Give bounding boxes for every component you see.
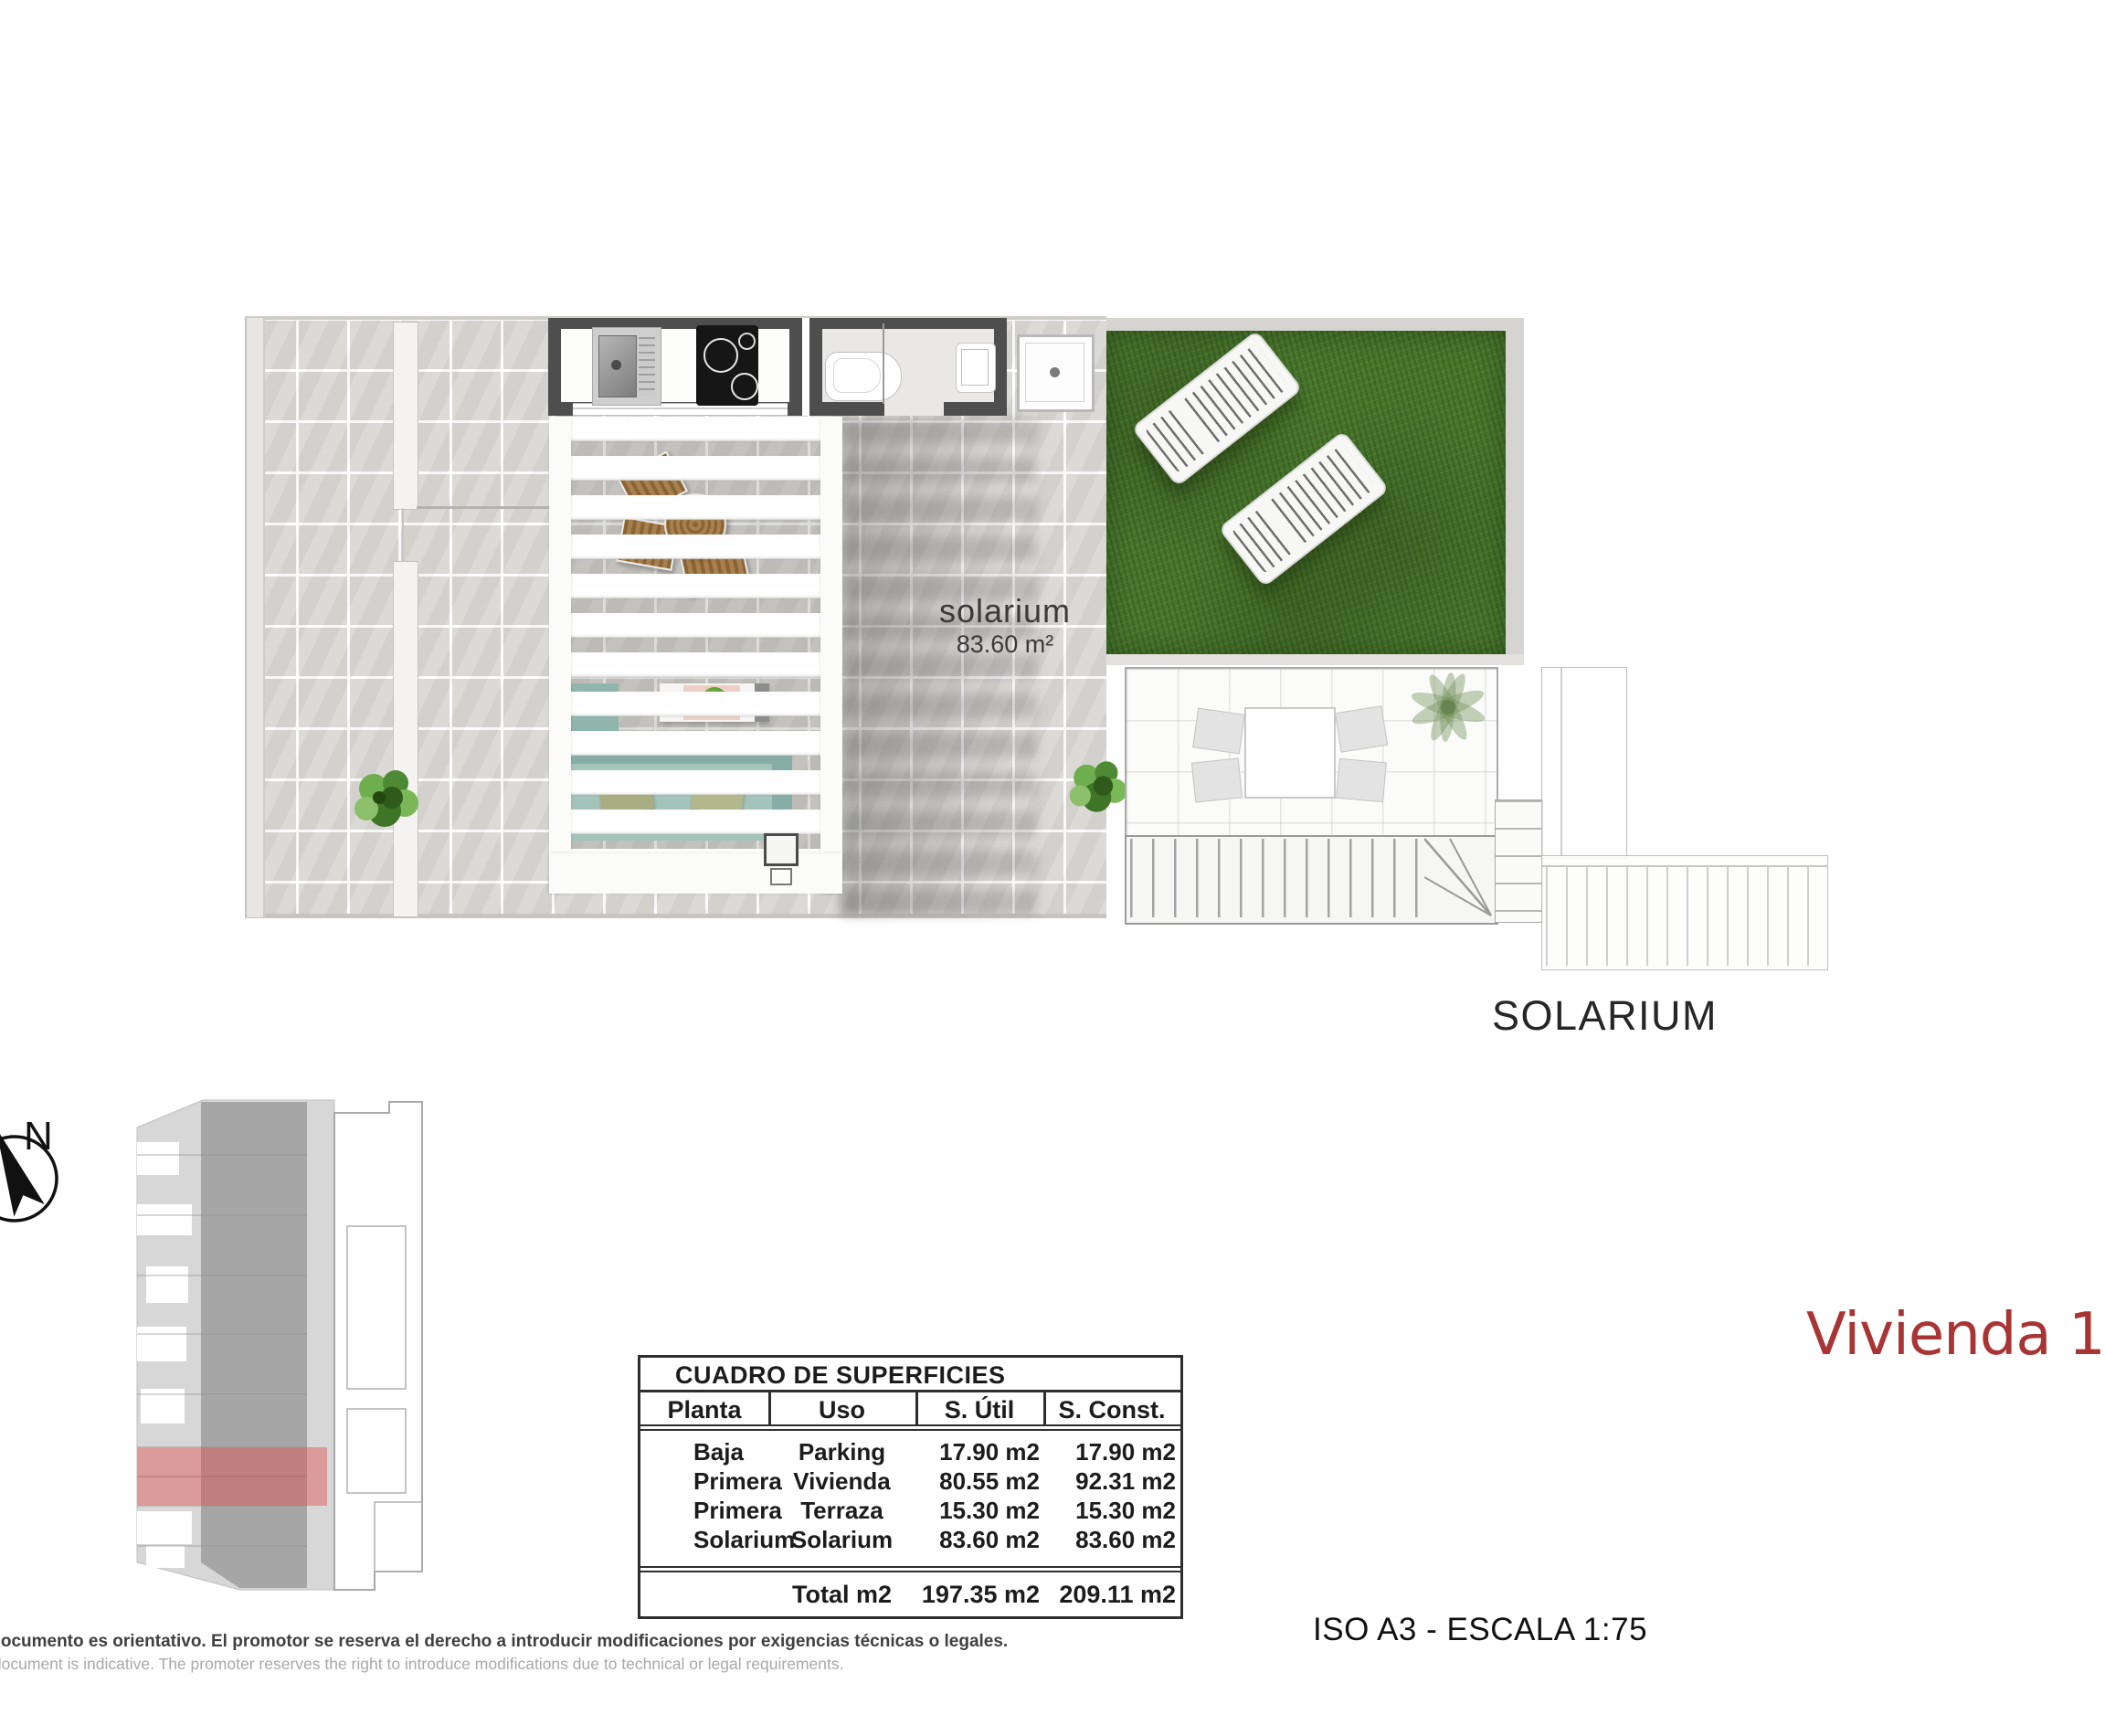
room-area-label: 83.60 m² [932,630,1078,659]
toilet [825,352,902,401]
interior-wall-lower [393,561,418,917]
cell-util: 17.90 m2 [915,1438,1040,1466]
keyplan [100,1089,439,1597]
scale-note: ISO A3 - ESCALA 1:75 [1313,1612,1647,1648]
plan-left-wall [245,318,265,917]
roof-hatch-outline [770,868,792,885]
cell-util: 83.60 m2 [915,1526,1040,1554]
room-label: solarium [932,592,1078,630]
disclaimer-es: El documento es orientativo. El promotor… [0,1632,1008,1652]
surfaces-table: CUADRO DE SUPERFICIES Planta Uso S. Útil… [638,1355,1183,1619]
plant-bush [352,763,421,834]
grass-border-top [1106,318,1524,331]
pergola-shadow [841,418,1037,916]
door-swing-line [417,506,559,509]
terrace-chair [1192,708,1245,755]
kitchen-room [548,318,802,416]
interior-wall-upper [393,322,418,510]
pergola-left-beam [549,417,571,894]
table-total-row: Total m2 197.35 m2 209.11 m2 [640,1581,1180,1608]
cell-planta: Baja [693,1438,744,1466]
terrace-chair [1335,705,1388,753]
cell-util: 80.55 m2 [915,1467,1040,1496]
cooktop [696,325,758,406]
cell-const: 15.30 m2 [1043,1497,1176,1525]
table-row: Baja Parking 17.90 m2 17.90 m2 [640,1438,1180,1464]
lower-level-outline [1541,667,1627,859]
terrace-chair [1191,757,1243,802]
total-const: 209.11 m2 [1043,1581,1176,1609]
terrace-chair [1336,758,1387,802]
grass-border-right [1506,318,1524,665]
kitchen-sink [592,327,661,406]
bathroom [809,318,1007,416]
table-row: Primera Terraza 15.30 m2 15.30 m2 [640,1497,1180,1522]
col-header-uso: Uso [768,1396,915,1424]
disclaimer-en: This document is indicative. The promote… [0,1655,843,1674]
door-leaf-line [402,508,404,561]
pergola-right-beam [820,417,842,894]
cell-uso: Vivienda [768,1467,915,1496]
total-util: 197.35 m2 [915,1581,1040,1609]
palm-tree-ghost [1398,663,1498,751]
stair-landing [1495,799,1543,923]
cell-const: 83.60 m2 [1043,1526,1176,1554]
cell-uso: Solarium [768,1526,915,1554]
terrace-table [1244,707,1336,799]
north-label: N [24,1115,53,1159]
cell-uso: Terraza [768,1497,915,1525]
plan-caption: SOLARIUM [1492,992,1718,1040]
stairs-main [1125,835,1498,925]
keyplan-building-dark [201,1102,307,1588]
plan-page: solarium 83.60 m² SOLARIUM [0,0,2105,1736]
plant-bush [1067,755,1129,819]
stair-winder-lines [1424,837,1493,919]
col-header-const: S. Const. [1043,1396,1180,1424]
shower-screen-line [883,323,884,404]
table-title: CUADRO DE SUPERFICIES [675,1361,1006,1390]
cell-uso: Parking [768,1438,915,1466]
cell-const: 17.90 m2 [1043,1438,1176,1466]
table-row: Primera Vivienda 80.55 m2 92.31 m2 [640,1467,1180,1493]
total-label: Total m2 [768,1581,915,1609]
shower-tray [1017,334,1095,412]
washbasin [956,343,996,393]
table-row: Solarium Solarium 83.60 m2 83.60 m2 [640,1526,1180,1551]
cell-util: 15.30 m2 [915,1497,1040,1525]
pergola-slats [549,417,842,894]
stairs-secondary [1541,855,1828,970]
col-header-util: S. Útil [915,1396,1043,1424]
unit-title: Vivienda 1 [1806,1301,2105,1369]
north-arrow-icon: N [0,1115,106,1252]
cell-const: 92.31 m2 [1043,1467,1176,1496]
roof-hatch [764,833,799,866]
wall-gap [802,318,809,416]
col-header-planta: Planta [640,1396,768,1424]
